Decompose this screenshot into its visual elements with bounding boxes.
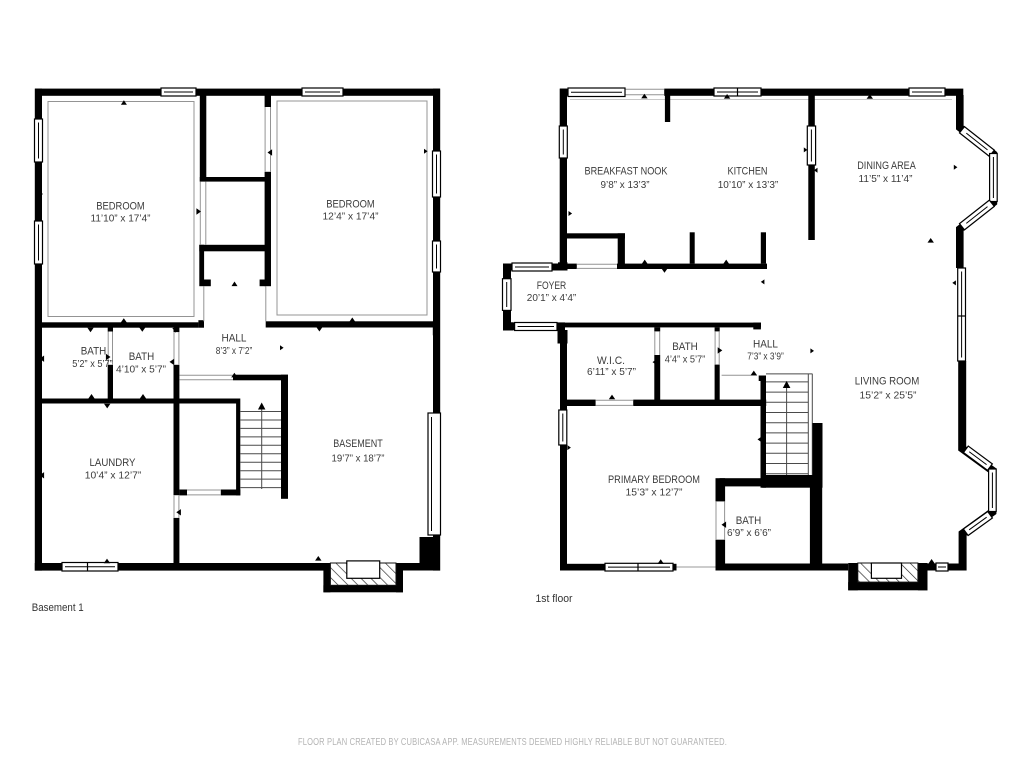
svg-text:W.I.C.: W.I.C.	[597, 355, 625, 367]
svg-text:BATH: BATH	[81, 346, 107, 358]
svg-text:6’9” x 6’6”: 6’9” x 6’6”	[727, 528, 772, 539]
svg-text:BATH: BATH	[736, 515, 762, 527]
svg-text:LAUNDRY: LAUNDRY	[90, 457, 137, 469]
svg-text:HALL: HALL	[222, 333, 247, 345]
svg-text:BATH: BATH	[129, 351, 155, 363]
svg-text:15’2” x 25’5”: 15’2” x 25’5”	[860, 391, 918, 402]
svg-text:KITCHEN: KITCHEN	[728, 166, 768, 178]
svg-text:HALL: HALL	[753, 338, 778, 350]
svg-text:15’3” x 12’7”: 15’3” x 12’7”	[626, 487, 684, 498]
svg-text:11’10” x 17’4”: 11’10” x 17’4”	[91, 214, 152, 225]
svg-text:FOYER: FOYER	[537, 280, 567, 292]
svg-text:BATH: BATH	[672, 341, 698, 353]
svg-text:11’5” x 11’4”: 11’5” x 11’4”	[859, 174, 914, 185]
svg-text:Basement 1: Basement 1	[32, 602, 84, 614]
svg-text:8’3” x 7’2”: 8’3” x 7’2”	[216, 346, 253, 357]
svg-text:10’10” x 13’3”: 10’10” x 13’3”	[718, 180, 779, 191]
svg-text:12’4” x 17’4”: 12’4” x 17’4”	[323, 212, 380, 223]
svg-text:19’7” x 18’7”: 19’7” x 18’7”	[332, 454, 385, 465]
svg-text:7’3” x 3’9”: 7’3” x 3’9”	[747, 352, 784, 363]
svg-text:LIVING ROOM: LIVING ROOM	[855, 376, 920, 388]
svg-text:PRIMARY BEDROOM: PRIMARY BEDROOM	[608, 474, 700, 486]
svg-text:10’4” x 12’7”: 10’4” x 12’7”	[85, 471, 142, 482]
svg-text:FLOOR PLAN CREATED BY CUBICASA: FLOOR PLAN CREATED BY CUBICASA APP. MEAS…	[298, 737, 727, 748]
svg-text:BEDROOM: BEDROOM	[96, 201, 145, 213]
svg-text:4’10” x 5’7”: 4’10” x 5’7”	[116, 365, 167, 376]
svg-text:5’2” x 5’7”: 5’2” x 5’7”	[72, 359, 113, 370]
svg-text:BEDROOM: BEDROOM	[326, 199, 375, 211]
svg-text:DINING AREA: DINING AREA	[857, 160, 916, 172]
svg-text:6’11” x 5’7”: 6’11” x 5’7”	[587, 367, 637, 378]
svg-text:BASEMENT: BASEMENT	[333, 438, 383, 450]
svg-text:BREAKFAST NOOK: BREAKFAST NOOK	[585, 166, 669, 178]
svg-text:1st floor: 1st floor	[536, 593, 573, 605]
svg-text:4’4” x 5’7”: 4’4” x 5’7”	[665, 355, 706, 366]
svg-text:9’8” x 13’3”: 9’8” x 13’3”	[601, 180, 651, 191]
svg-text:20’1” x 4’4”: 20’1” x 4’4”	[527, 293, 577, 304]
